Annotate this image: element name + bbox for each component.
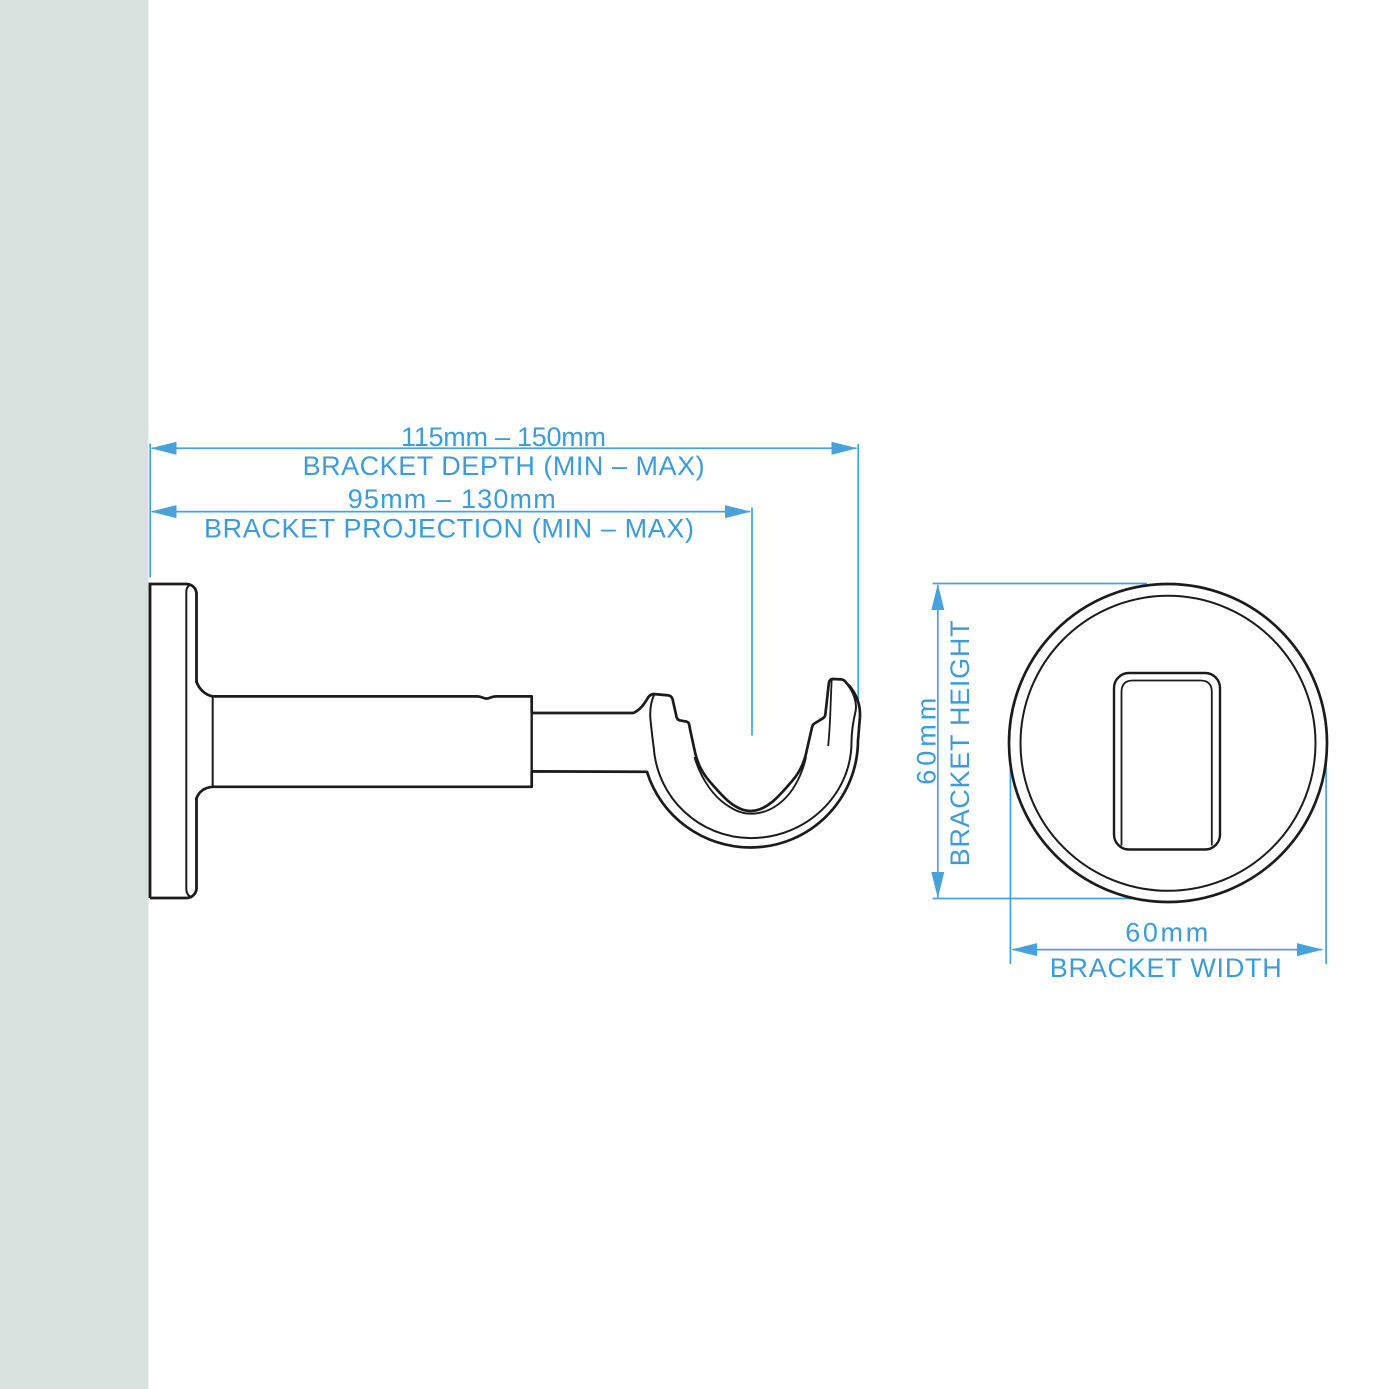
svg-text:BRACKET PROJECTION (MIN – MAX): BRACKET PROJECTION (MIN – MAX) bbox=[204, 514, 694, 544]
svg-text:95mm – 130mm: 95mm – 130mm bbox=[348, 484, 556, 514]
svg-text:115mm – 150mm: 115mm – 150mm bbox=[401, 422, 606, 452]
svg-text:BRACKET WIDTH: BRACKET WIDTH bbox=[1050, 953, 1282, 983]
svg-text:BRACKET DEPTH (MIN – MAX): BRACKET DEPTH (MIN – MAX) bbox=[303, 451, 705, 481]
svg-text:60mm: 60mm bbox=[912, 698, 942, 785]
svg-text:BRACKET HEIGHT: BRACKET HEIGHT bbox=[945, 620, 975, 866]
svg-text:60mm: 60mm bbox=[1125, 918, 1208, 948]
